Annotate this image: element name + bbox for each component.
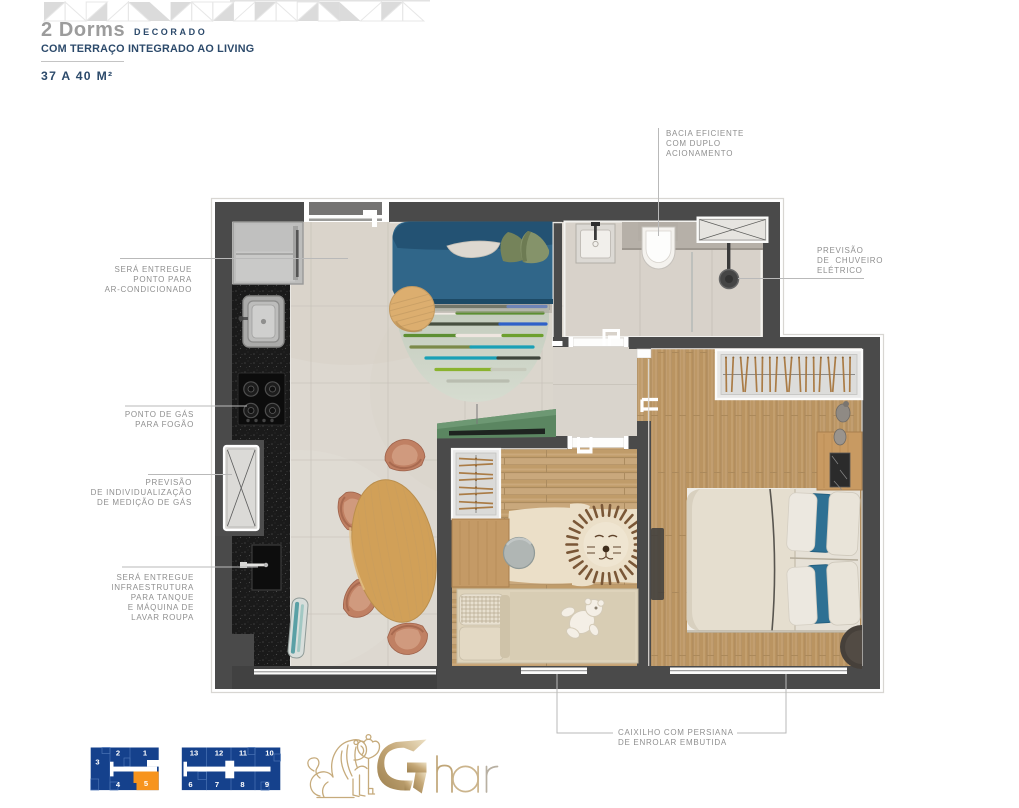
svg-text:12: 12 <box>215 748 223 757</box>
svg-text:11: 11 <box>239 748 248 757</box>
svg-text:6: 6 <box>188 780 192 789</box>
svg-text:8: 8 <box>240 780 244 789</box>
svg-text:13: 13 <box>190 748 198 757</box>
svg-text:2: 2 <box>116 748 120 757</box>
svg-text:7: 7 <box>215 780 219 789</box>
svg-text:3: 3 <box>95 758 99 767</box>
svg-text:9: 9 <box>265 780 269 789</box>
svg-text:10: 10 <box>265 748 273 757</box>
